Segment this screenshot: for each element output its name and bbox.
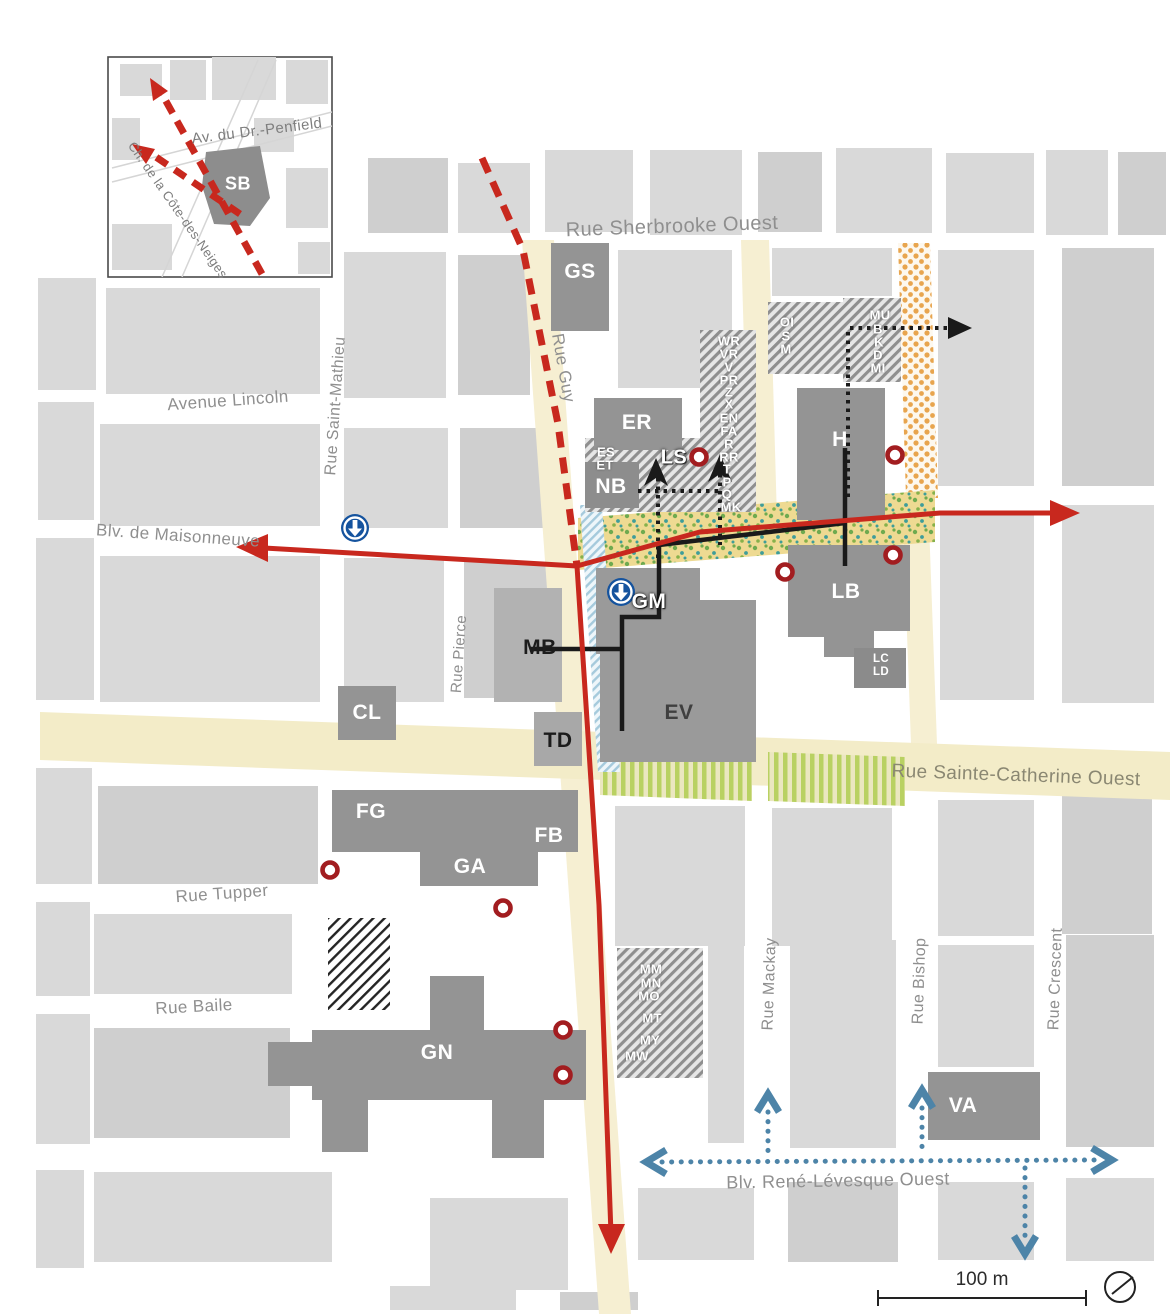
city-block xyxy=(344,558,444,702)
map-canvas xyxy=(0,0,1170,1314)
city-block xyxy=(1062,505,1154,703)
inset-map xyxy=(108,56,332,277)
metro-icon-guy-concordia xyxy=(607,578,635,606)
city-block xyxy=(458,255,530,395)
city-block xyxy=(170,60,206,100)
city-block xyxy=(788,1182,898,1262)
city-block xyxy=(36,1170,84,1268)
arrow-up-blue-1 xyxy=(757,1094,779,1112)
building-gn xyxy=(312,1030,586,1100)
building-h xyxy=(797,388,885,520)
city-block xyxy=(458,163,530,233)
construction-site xyxy=(328,918,390,1010)
city-block xyxy=(1062,248,1154,486)
city-block xyxy=(390,1286,516,1310)
city-block xyxy=(38,278,96,390)
city-block xyxy=(1066,935,1154,1147)
city-block xyxy=(772,808,892,946)
city-block xyxy=(638,1188,754,1260)
building-mb xyxy=(494,588,562,702)
city-block xyxy=(790,940,896,1148)
building-gm xyxy=(596,568,700,654)
building-td xyxy=(534,712,582,766)
campus-map: Rue Sherbrooke Ouest Rue Guy Avenue Linc… xyxy=(0,0,1170,1314)
city-block xyxy=(940,512,1034,700)
city-block xyxy=(772,248,892,296)
scale-bar xyxy=(878,1290,1086,1306)
city-block xyxy=(758,152,822,232)
building-faubourg xyxy=(332,790,578,852)
city-block xyxy=(36,902,90,996)
ste-catherine-green-band-east xyxy=(768,752,905,806)
city-block xyxy=(36,768,92,884)
building-ga xyxy=(420,852,538,886)
city-block xyxy=(98,786,318,884)
building-va xyxy=(928,1072,1040,1140)
city-block xyxy=(106,288,320,394)
city-block xyxy=(94,1028,290,1138)
city-block xyxy=(344,428,448,528)
city-block xyxy=(1118,152,1166,235)
building-nb xyxy=(585,462,639,508)
city-block xyxy=(545,150,633,232)
bishop-orange-dot-band xyxy=(898,243,938,498)
city-block xyxy=(100,556,320,702)
city-block xyxy=(38,402,94,520)
city-block xyxy=(938,800,1034,936)
city-block xyxy=(368,158,448,233)
city-block xyxy=(430,1198,568,1290)
city-block xyxy=(112,224,172,270)
city-block xyxy=(946,153,1034,233)
north-compass-icon xyxy=(1105,1272,1135,1302)
building-cl xyxy=(338,686,396,740)
building-gs xyxy=(551,243,609,331)
city-block xyxy=(1066,1178,1154,1261)
city-block xyxy=(112,118,140,160)
city-block xyxy=(36,538,94,700)
building-er xyxy=(594,398,682,450)
city-block xyxy=(94,914,292,994)
city-block xyxy=(286,60,328,104)
metro-icon-guy-concordia-west xyxy=(341,514,369,542)
city-block xyxy=(100,424,320,526)
city-block xyxy=(344,252,446,398)
city-block xyxy=(1062,796,1152,934)
city-block xyxy=(1046,150,1108,235)
building-lc-ld xyxy=(854,648,906,688)
city-block xyxy=(836,148,932,233)
city-block xyxy=(94,1172,332,1262)
city-block xyxy=(708,945,744,1143)
city-block xyxy=(298,242,330,274)
city-block xyxy=(36,1014,90,1144)
city-block xyxy=(938,250,1034,486)
city-block xyxy=(938,945,1034,1067)
city-block xyxy=(615,806,745,946)
city-block xyxy=(286,168,328,228)
city-block xyxy=(650,150,742,235)
